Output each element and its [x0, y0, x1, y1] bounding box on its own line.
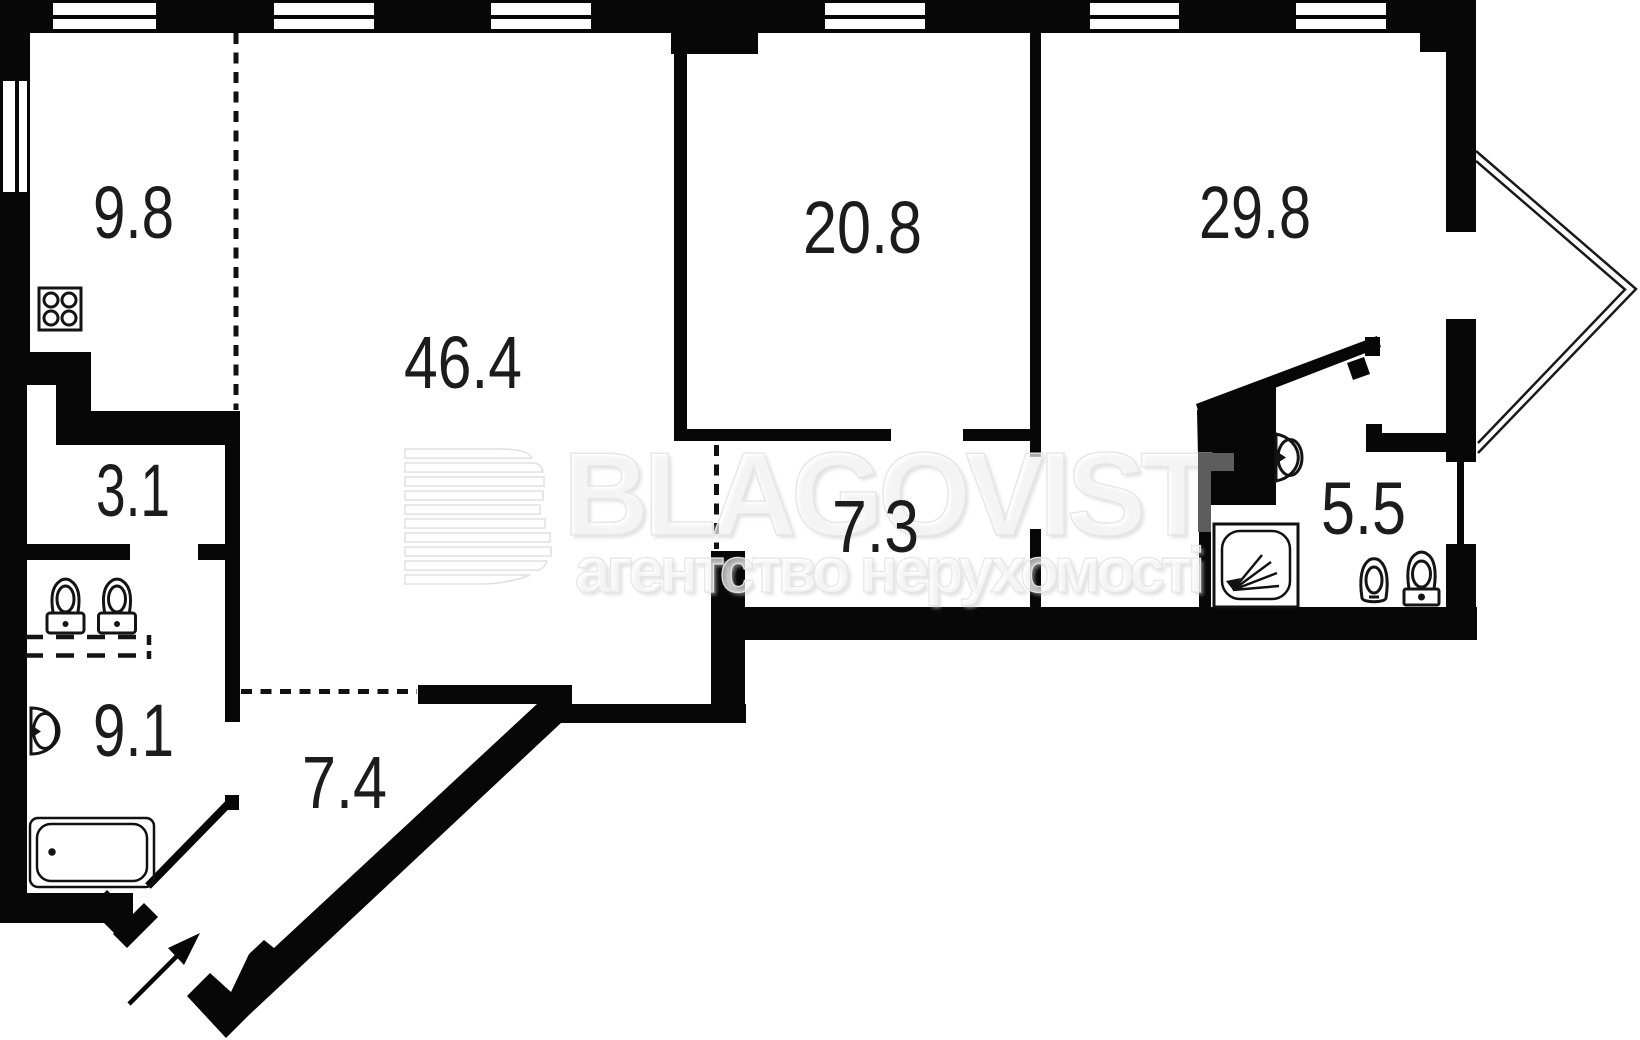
svg-text:46.4: 46.4 [404, 321, 522, 404]
svg-text:7.3: 7.3 [832, 485, 919, 568]
svg-text:20.8: 20.8 [803, 186, 922, 269]
svg-text:3.1: 3.1 [96, 449, 170, 532]
svg-text:7.4: 7.4 [302, 741, 387, 824]
svg-text:9.8: 9.8 [93, 171, 174, 254]
svg-text:29.8: 29.8 [1199, 171, 1311, 254]
svg-text:5.5: 5.5 [1321, 467, 1406, 550]
svg-text:9.1: 9.1 [93, 689, 174, 772]
